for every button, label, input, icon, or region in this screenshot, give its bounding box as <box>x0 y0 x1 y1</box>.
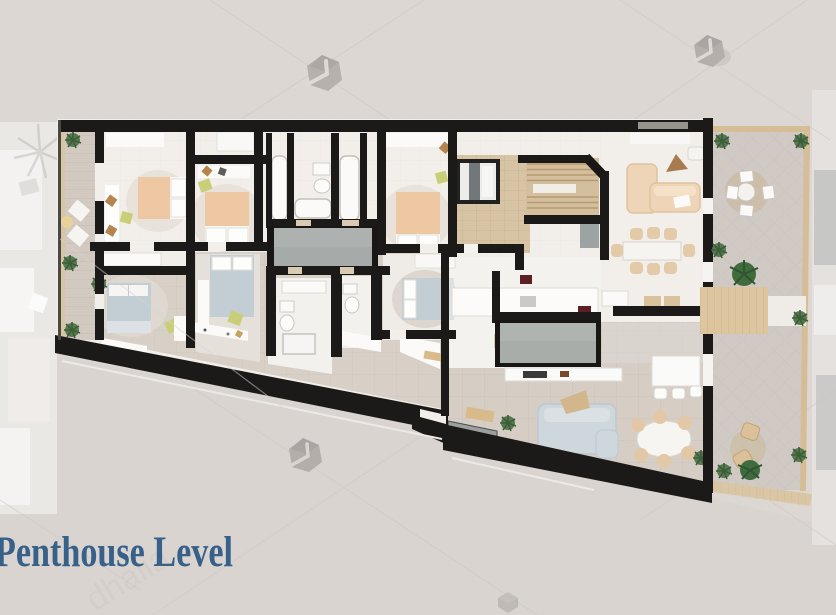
svg-text:Penthouse Level: Penthouse Level <box>0 529 233 576</box>
